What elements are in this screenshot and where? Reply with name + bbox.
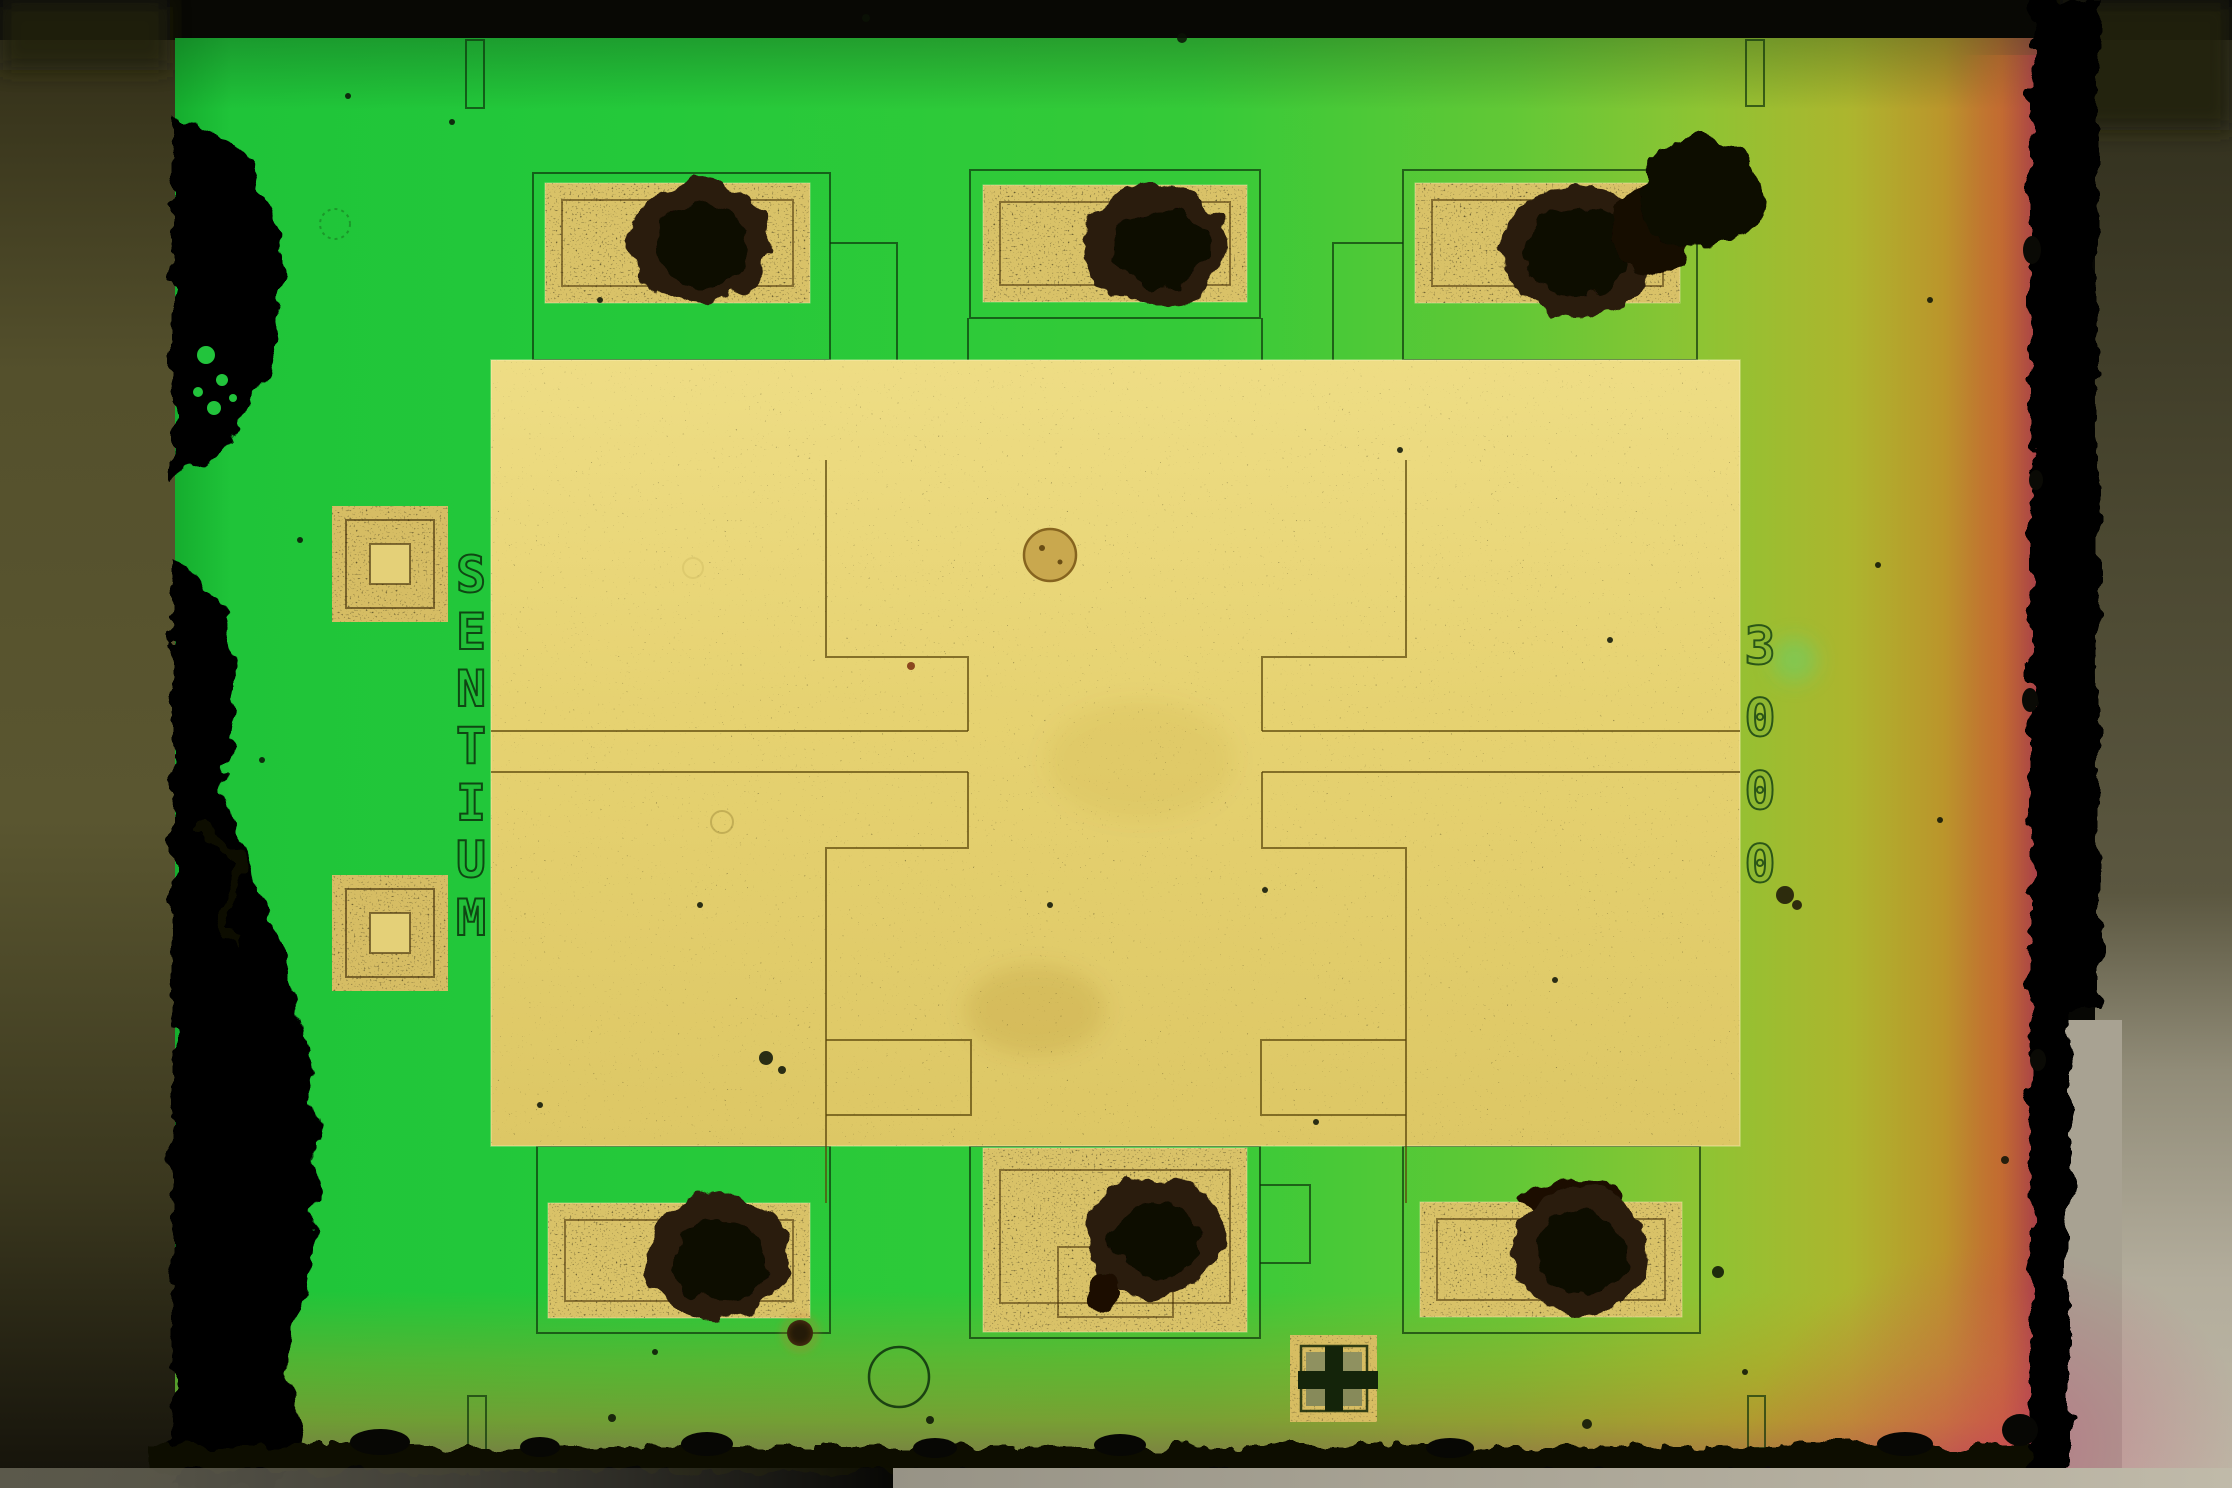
small-square-pad-upper — [332, 506, 448, 622]
frame-left-strip — [0, 0, 178, 1488]
marking-letter: U — [456, 831, 486, 889]
cross-horizontal-bar — [1298, 1371, 1378, 1389]
marking-digit: 0 — [1744, 762, 1775, 822]
frame-right-gap-upper — [2030, 0, 2098, 1010]
frame-bottom-gray-strip — [0, 1468, 2232, 1488]
teal-glow-spot — [1773, 638, 1817, 682]
marking-digit: 0 — [1744, 835, 1775, 895]
die-photo: S E N T I U M 3 0 0 0 — [0, 0, 2232, 1488]
marking-digit: 3 — [1744, 617, 1775, 677]
bond-residue-top-mid — [1083, 186, 1227, 304]
marking-letter: I — [456, 774, 486, 832]
gold-metal-plate — [491, 360, 1740, 1146]
frame-right-gap-lower — [2030, 1000, 2070, 1488]
marking-letter: S — [456, 546, 486, 604]
plate-stain — [965, 965, 1105, 1055]
bond-residue-top-left — [630, 181, 770, 305]
marking-letter: E — [456, 603, 486, 661]
ringed-particle — [784, 1317, 816, 1349]
marking-digit: 0 — [1744, 689, 1775, 749]
bond-residue-bottom-left — [644, 1195, 788, 1319]
die-photo-canvas: S E N T I U M 3 0 0 0 — [0, 0, 2232, 1488]
alignment-cross-marker — [1290, 1335, 1378, 1422]
marking-letter: T — [456, 717, 486, 775]
marking-letter: N — [456, 660, 486, 718]
frame-corner-olive-tl — [0, 0, 170, 70]
marking-left-sentium: S E N T I U M — [456, 546, 486, 947]
marking-letter: M — [456, 889, 486, 947]
small-square-pad-lower — [332, 875, 448, 991]
frame-top-band — [0, 0, 2232, 40]
